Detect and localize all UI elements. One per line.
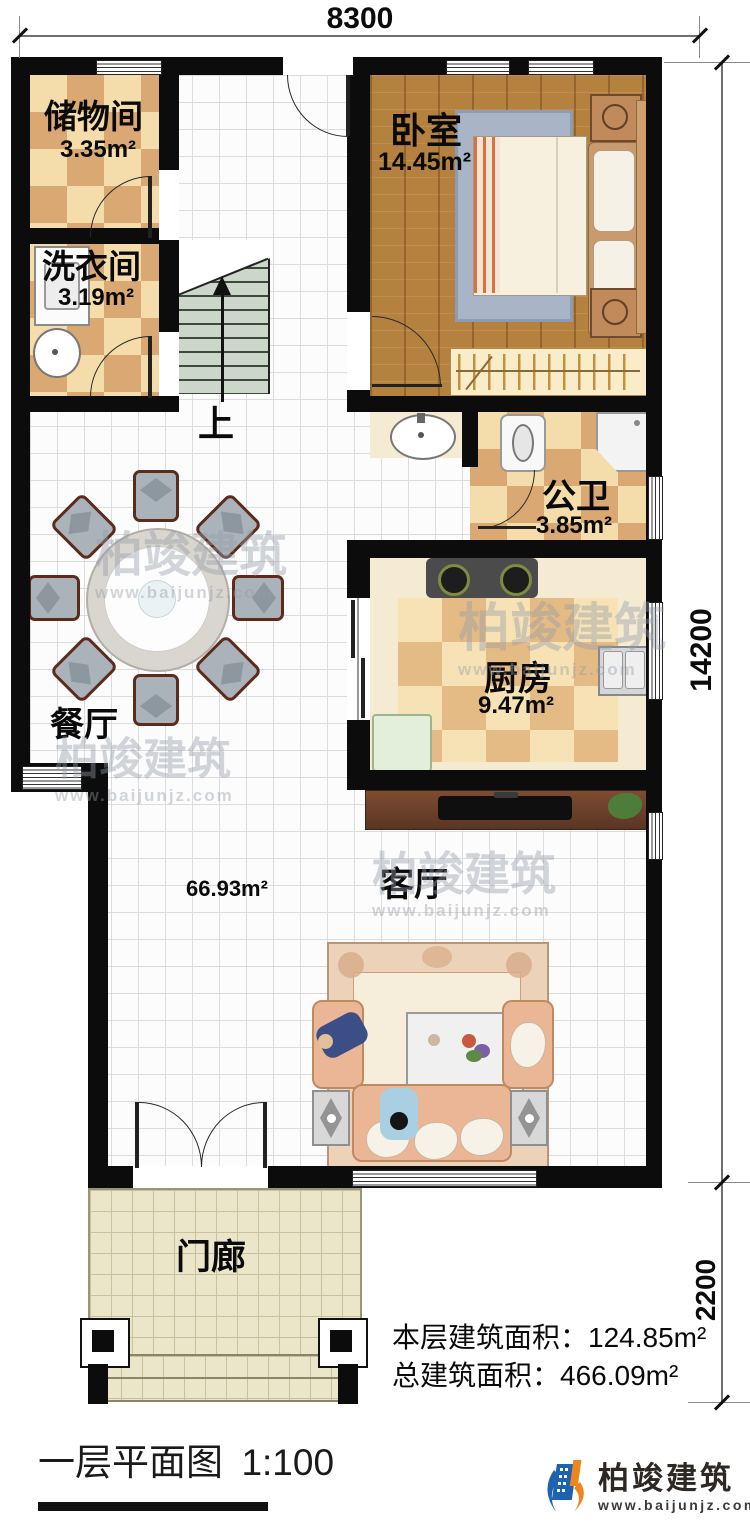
wall-bedroom-bathroom [347, 396, 662, 412]
carpet-medallion [422, 946, 452, 968]
logo-website: www.baijunjz.com [598, 1498, 750, 1512]
wardrobe-hangers [458, 354, 638, 390]
bed-fold-line [556, 137, 558, 293]
tv-icon [438, 796, 572, 820]
fridge [372, 714, 432, 772]
coffee-table-dish [428, 1034, 440, 1046]
bathroom-door-leaf [478, 526, 536, 529]
dimension-side-value: 14200 [687, 575, 723, 725]
room-label-bathroom: 公卫 [542, 480, 610, 514]
entry-door-leaf [263, 1102, 267, 1168]
back-door-opening [283, 57, 353, 75]
title-underline [38, 1502, 268, 1511]
window [648, 812, 663, 860]
dimension-top-value: 8300 [260, 4, 460, 34]
room-area-storage: 3.35m² [60, 138, 136, 162]
room-area-bathroom: 3.85m² [536, 514, 612, 538]
laundry-door-leaf [148, 336, 152, 398]
floor-plan-sheet: 储物间 3.35m² 洗衣间 3.19m² 卧室 14.45m² 公卫 3.85… [0, 0, 750, 1530]
window [446, 60, 510, 75]
wall-kitchen-bottom [347, 770, 662, 790]
porch-column-base [88, 1364, 108, 1404]
carpet-medallion [338, 952, 364, 978]
watermark: 柏竣建筑 www.baijunjz.com [95, 528, 287, 603]
window [96, 60, 162, 75]
watermark: 柏竣建筑 www.baijunjz.com [372, 848, 556, 920]
dining-chair [133, 674, 179, 726]
room-area-bedroom: 14.45m² [378, 150, 471, 175]
stairs-up-label: 上 [198, 406, 234, 442]
plan-scale: 1:100 [241, 1442, 334, 1483]
room-label-bedroom: 卧室 [390, 113, 462, 149]
bedroom-door-leaf [372, 384, 442, 387]
dimension-line-top [20, 35, 700, 37]
staircase-direction-arrow [221, 292, 224, 402]
porch-step-line [100, 1377, 346, 1379]
window [528, 60, 594, 75]
shower-drain [634, 420, 640, 426]
bed-pillow [593, 150, 635, 232]
back-door-leaf [346, 75, 350, 136]
company-logo: 柏竣建筑 www.baijunjz.com [544, 1456, 750, 1519]
side-table-lamp [312, 1090, 350, 1146]
entry-door-opening [133, 1166, 268, 1188]
tv-stand [494, 792, 518, 798]
watermark: 柏竣建筑 www.baijunjz.com [458, 600, 666, 679]
wall-left-lower [88, 792, 108, 1168]
stove-burner [500, 564, 532, 596]
storage-door-leaf [148, 176, 152, 238]
carpet-medallion [506, 952, 532, 978]
kitchen-slider-panel [361, 658, 365, 718]
nightstand-ornament [602, 104, 628, 130]
bathroom-sink-faucet [417, 413, 425, 423]
dining-chair [28, 575, 80, 621]
person-head [318, 1034, 333, 1049]
kitchen-slider-track [357, 598, 359, 720]
title-block: 一层平面图 1:100 [38, 1444, 334, 1481]
stove-burner [438, 564, 470, 596]
person-head [390, 1112, 408, 1130]
laundry-door-opening [159, 332, 179, 396]
squat-toilet-basin [512, 424, 534, 462]
extension-line [664, 62, 750, 63]
entry-door-leaf [135, 1102, 139, 1168]
plan-title: 一层平面图 [38, 1442, 223, 1483]
porch-column-core [330, 1330, 352, 1352]
coffee-table-flowers [462, 1034, 476, 1048]
bedroom-door-opening [347, 312, 370, 390]
logo-name: 柏竣建筑 [598, 1463, 750, 1494]
wardrobe-rod [456, 370, 640, 372]
room-area-kitchen: 9.47m² [478, 694, 554, 718]
wall-bathroom-stub [462, 412, 478, 467]
staircase-arrowhead-icon [213, 276, 231, 295]
wall-laundry-bottom [11, 396, 179, 412]
room-area-laundry: 3.19m² [58, 286, 134, 310]
window [352, 1170, 537, 1187]
kitchen-slider-panel [351, 600, 355, 658]
dining-chair [133, 470, 179, 522]
room-label-porch: 门廊 [176, 1240, 246, 1275]
coffee-table-flowers [466, 1050, 482, 1062]
laundry-sink-drain [52, 349, 58, 355]
bed-blanket-stripe [474, 137, 500, 293]
side-table-lamp [510, 1090, 548, 1146]
room-label-laundry: 洗衣间 [42, 250, 141, 283]
outside-area [0, 792, 88, 1168]
room-area-living: 66.93m² [186, 878, 268, 900]
wall-bathroom-kitchen [347, 540, 662, 558]
logo-building-icon [544, 1456, 590, 1519]
dimension-line-right [721, 62, 723, 1404]
window [648, 476, 663, 540]
watermark: 柏竣建筑 www.baijunjz.com [55, 735, 234, 805]
storage-door-opening [159, 170, 179, 240]
room-label-storage: 储物间 [44, 100, 143, 133]
nightstand-ornament [602, 299, 628, 325]
bathroom-sink-drain [418, 432, 424, 438]
floor-area-text: 本层建筑面积：124.85m² [392, 1324, 706, 1352]
porch-column-base [338, 1364, 358, 1404]
total-area-text: 总建筑面积：466.09m² [392, 1362, 678, 1390]
porch-column-core [92, 1330, 114, 1352]
